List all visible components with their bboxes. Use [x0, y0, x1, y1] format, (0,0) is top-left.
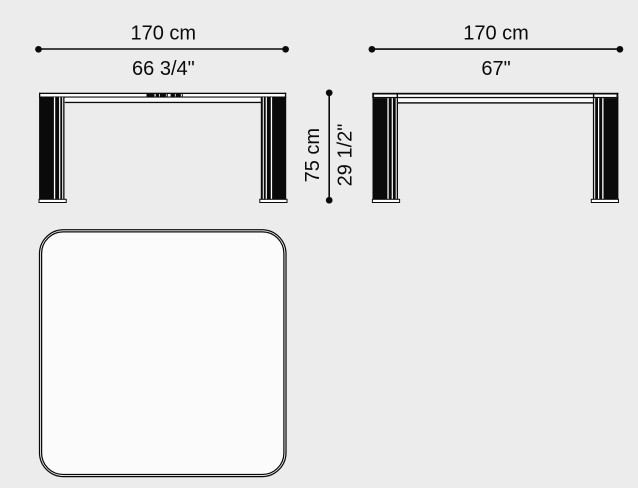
- svg-text:67": 67": [481, 58, 510, 80]
- svg-text:75 cm: 75 cm: [302, 128, 324, 182]
- svg-text:29 1/2": 29 1/2": [334, 124, 356, 187]
- svg-text:170 cm: 170 cm: [463, 22, 529, 44]
- svg-text:170 cm: 170 cm: [131, 22, 197, 44]
- svg-text:66 3/4": 66 3/4": [132, 58, 195, 80]
